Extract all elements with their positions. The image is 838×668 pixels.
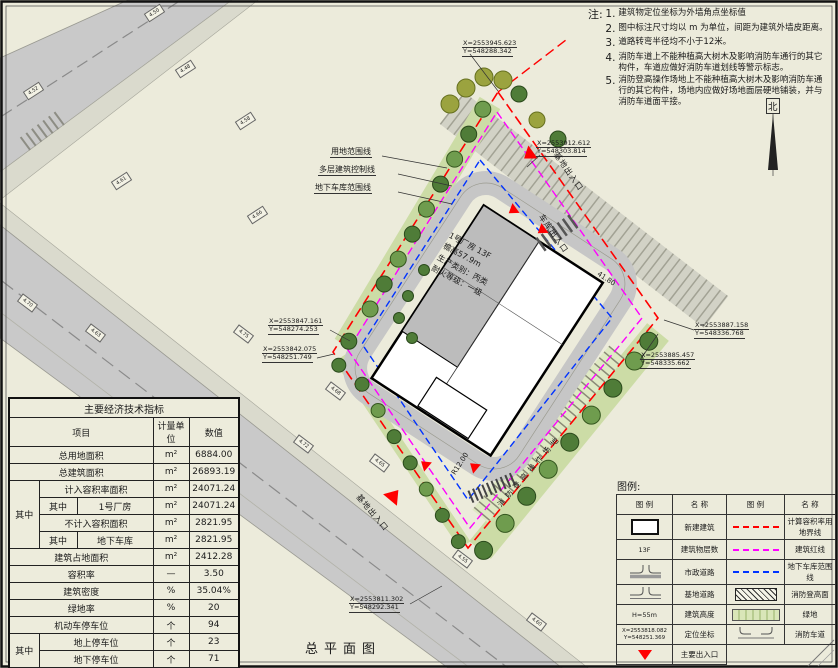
tree-icon — [390, 251, 406, 267]
tree-icon — [441, 95, 459, 113]
main-entrance-icon — [638, 650, 652, 660]
tree-icon — [341, 333, 357, 349]
coordinate-callout: X=2553842.075Y=548251.749 — [262, 346, 317, 363]
tree-icon — [529, 112, 545, 128]
economic-indicator-table: 主要经济技术指标 项目 计量单位 数值 总用地面积m²6884.00 总建筑面积… — [8, 397, 240, 668]
drawing-title: 总平面图 — [305, 638, 381, 657]
site-boundary-label: 用地范围线 — [330, 146, 372, 158]
notes-heading: 注: — [588, 8, 603, 22]
table-row: 其中地上停车位个23 — [9, 634, 239, 651]
table-row: 其中1号厂房m²24071.24 — [9, 498, 239, 515]
storey-count-icon: 13F — [617, 540, 673, 560]
tree-icon — [371, 403, 385, 417]
note-item: 图中标注尺寸均以 m 为单位，间距为建筑外墙皮距离。 — [618, 23, 830, 37]
table-row: 容积率—3.50 — [9, 566, 239, 583]
coordinate-callout: X=2553887.158Y=548336.768 — [694, 322, 749, 339]
table-row: 地下停车位个71 — [9, 651, 239, 668]
table-row: 绿地率%20 — [9, 600, 239, 617]
building-height-icon: H=55m — [617, 605, 673, 625]
green-space-icon — [732, 609, 780, 621]
municipal-road-icon — [617, 560, 673, 585]
building-redline-icon — [733, 549, 779, 551]
new-building-icon — [631, 519, 659, 535]
tree-icon — [475, 101, 491, 117]
tree-icon — [376, 276, 392, 292]
legend-table: 图 例名 称 图 例名 称 新建建筑 计算容积率用地界线 13F 建筑物层数 建… — [616, 494, 836, 665]
note-item: 道路转弯半径均不小于12米。 — [618, 37, 830, 51]
positioning-coordinate-icon: X=2553818.082Y=548251.369 — [617, 625, 673, 645]
north-arrow-icon — [768, 114, 778, 176]
tree-icon — [394, 313, 405, 324]
tree-icon — [561, 433, 579, 451]
tree-icon — [355, 377, 369, 391]
table-title: 主要经济技术指标 — [9, 398, 239, 418]
tree-icon — [457, 79, 475, 97]
tree-icon — [404, 226, 420, 242]
tree-icon — [332, 358, 346, 372]
fire-climbing-face-icon — [735, 588, 777, 601]
coordinate-callout: X=2553811.302Y=548292.341 — [349, 596, 404, 613]
coordinate-callout: X=2553945.623Y=548288.342 — [462, 40, 517, 57]
building-control-label: 多层建筑控制线 — [318, 164, 376, 176]
site-plan-sheet: 注: 1.建筑物定位坐标为外墙角点坐标值 2.图中标注尺寸均以 m 为单位，间距… — [0, 0, 838, 668]
tree-icon — [475, 68, 493, 86]
table-row: 总建筑面积m²26893.19 — [9, 464, 239, 481]
tree-icon — [451, 535, 465, 549]
north-label: 北 — [766, 98, 780, 114]
note-item: 消防车道上不能种植高大树木及影响消防车通行的其它构件，车道应做好消防车道划线等警… — [618, 52, 830, 74]
legend-heading: 图例: — [617, 478, 640, 493]
tree-icon — [475, 541, 493, 559]
table-row: 建筑密度%35.04% — [9, 583, 239, 600]
coordinate-callout: X=2553847.161Y=548274.253 — [268, 318, 323, 335]
tree-icon — [419, 265, 430, 276]
tree-icon — [494, 71, 512, 89]
tree-icon — [403, 456, 417, 470]
table-row: 其中地下车库m²2821.95 — [9, 532, 239, 549]
note-item: 消防登高操作场地上不能种植高大树木及影响消防车通行的其它构件，场地内应做好场地面… — [618, 75, 830, 108]
table-row: 其中计入容积率面积m²24071.24 — [9, 481, 239, 498]
far-boundary-icon — [733, 526, 779, 528]
table-row: 机动车停车位个94 — [9, 617, 239, 634]
table-row: 建筑占地面积m²2412.28 — [9, 549, 239, 566]
tree-icon — [418, 201, 434, 217]
garage-boundary-label: 地下车库范围线 — [314, 182, 372, 194]
tree-icon — [403, 291, 414, 302]
tree-icon — [435, 508, 449, 522]
table-row: 总用地面积m²6884.00 — [9, 447, 239, 464]
notes-panel: 注: 1.建筑物定位坐标为外墙角点坐标值 2.图中标注尺寸均以 m 为单位，间距… — [588, 8, 834, 109]
table-row: 不计入容积面积m²2821.95 — [9, 515, 239, 532]
fire-lane-icon — [727, 625, 785, 645]
tree-icon — [511, 86, 527, 102]
note-item: 建筑物定位坐标为外墙角点坐标值 — [618, 8, 830, 22]
tree-icon — [496, 514, 514, 532]
site-road-icon — [617, 585, 673, 605]
coordinate-callout: X=2553885.457Y=548335.662 — [640, 352, 695, 369]
tree-icon — [604, 379, 622, 397]
tree-icon — [518, 487, 536, 505]
tree-icon — [419, 482, 433, 496]
tree-icon — [433, 176, 449, 192]
tree-icon — [461, 126, 477, 142]
tree-icon — [362, 301, 378, 317]
tree-icon — [447, 151, 463, 167]
tree-icon — [407, 333, 418, 344]
tree-icon — [582, 406, 600, 424]
tree-icon — [387, 430, 401, 444]
garage-line-icon — [733, 571, 779, 573]
